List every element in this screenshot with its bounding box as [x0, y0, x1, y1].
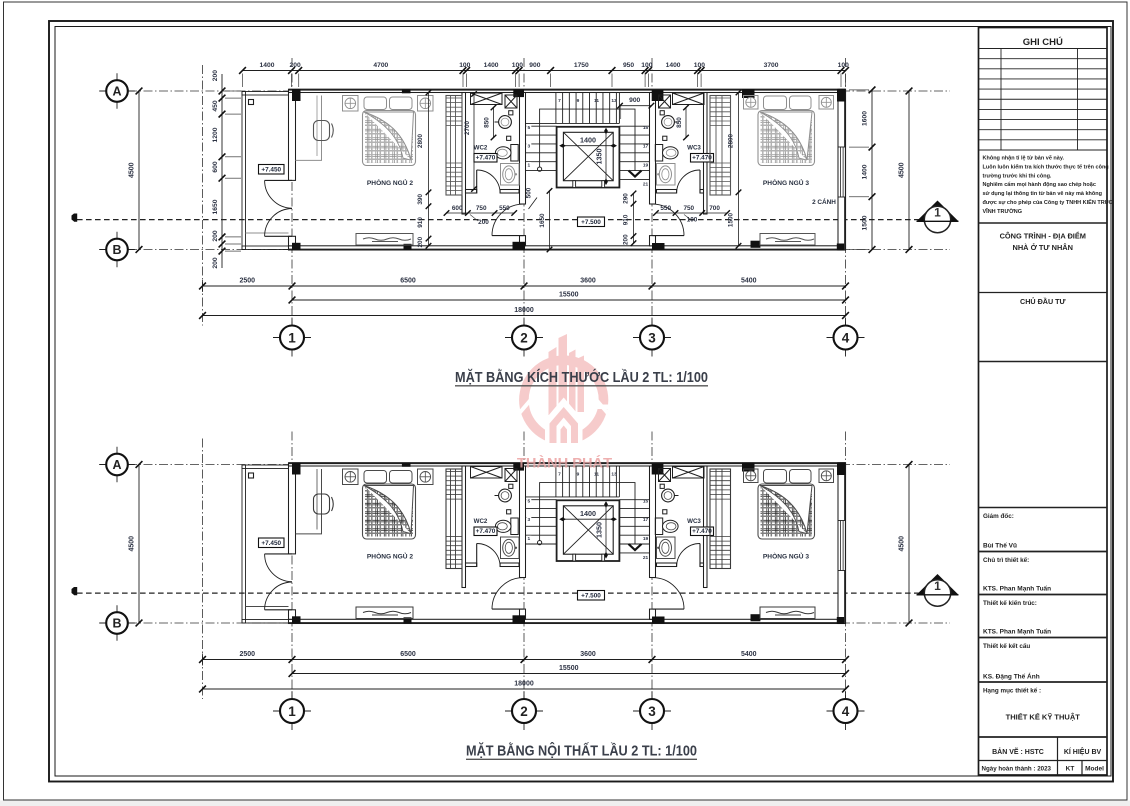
svg-text:+7.500: +7.500 [581, 593, 601, 600]
svg-text:4500: 4500 [129, 536, 136, 552]
svg-text:15500: 15500 [559, 292, 579, 299]
svg-text:1400: 1400 [666, 62, 681, 69]
svg-text:+7.500: +7.500 [581, 219, 601, 226]
svg-text:15: 15 [643, 498, 649, 504]
svg-text:1750: 1750 [574, 62, 589, 69]
svg-text:Thiết kế kết cấu: Thiết kế kết cấu [983, 642, 1030, 650]
svg-text:1400: 1400 [862, 164, 869, 179]
svg-text:PHÒNG NGỦ 2: PHÒNG NGỦ 2 [367, 552, 413, 561]
svg-text:4: 4 [842, 330, 850, 345]
svg-text:15: 15 [643, 125, 649, 131]
svg-text:1350: 1350 [595, 149, 604, 165]
svg-text:100: 100 [459, 62, 470, 69]
svg-text:PHÒNG NGỦ 3: PHÒNG NGỦ 3 [763, 552, 809, 561]
svg-text:15500: 15500 [559, 665, 579, 672]
svg-text:Giám đốc:: Giám đốc: [983, 512, 1014, 520]
svg-text:trường trước khi thi công.: trường trước khi thi công. [983, 173, 1052, 179]
svg-text:THÀNH PHÁT: THÀNH PHÁT [517, 456, 613, 471]
svg-text:910: 910 [417, 217, 424, 228]
svg-text:3700: 3700 [764, 62, 779, 69]
svg-text:11: 11 [594, 472, 599, 478]
svg-text:KTS. Phan Mạnh Tuấn: KTS. Phan Mạnh Tuấn [983, 585, 1051, 593]
svg-text:WC3: WC3 [687, 518, 701, 525]
svg-text:900: 900 [529, 62, 540, 69]
svg-text:1: 1 [288, 704, 296, 719]
svg-text:Chủ trì thiết kế:: Chủ trì thiết kế: [983, 556, 1029, 564]
svg-text:3600: 3600 [580, 278, 596, 285]
svg-text:200: 200 [212, 257, 219, 268]
svg-text:850: 850 [676, 117, 683, 128]
svg-text:Ngày hoàn thành : 2023: Ngày hoàn thành : 2023 [982, 766, 1052, 773]
svg-text:WC2: WC2 [474, 145, 488, 152]
svg-text:B: B [112, 243, 121, 257]
svg-text:3: 3 [648, 330, 656, 345]
svg-text:GHI CHÚ: GHI CHÚ [1023, 36, 1063, 48]
svg-text:được sự cho phép của Công ty T: được sự cho phép của Công ty TNHH KIẾN T… [983, 199, 1113, 206]
svg-text:4500: 4500 [899, 536, 906, 552]
svg-text:19: 19 [643, 163, 649, 169]
svg-text:WC3: WC3 [687, 145, 701, 152]
svg-text:1400: 1400 [260, 62, 275, 69]
svg-text:CÔNG TRÌNH - ĐỊA ĐIỂM: CÔNG TRÌNH - ĐỊA ĐIỂM [1000, 232, 1086, 241]
svg-text:PHÒNG NGỦ 3: PHÒNG NGỦ 3 [763, 178, 809, 187]
svg-text:17: 17 [643, 517, 649, 523]
svg-text:Nghiêm cấm mọi hành động sao c: Nghiêm cấm mọi hành động sao chép hoặc [983, 181, 1096, 188]
svg-text:200: 200 [623, 234, 630, 245]
svg-text:200: 200 [290, 62, 301, 69]
svg-text:7: 7 [558, 472, 561, 478]
svg-text:1: 1 [527, 163, 530, 169]
svg-text:550: 550 [499, 205, 510, 212]
svg-text:5: 5 [527, 125, 530, 131]
svg-text:13: 13 [611, 472, 617, 478]
svg-text:PHÒNG NGỦ 2: PHÒNG NGỦ 2 [367, 178, 413, 187]
svg-text:2 CÁNH: 2 CÁNH [812, 197, 836, 206]
svg-text:5400: 5400 [741, 651, 757, 658]
svg-text:1200: 1200 [212, 127, 219, 142]
svg-text:+7.470: +7.470 [476, 528, 496, 535]
svg-text:VĨNH TRƯỜNG: VĨNH TRƯỜNG [983, 207, 1023, 215]
svg-text:1600: 1600 [862, 111, 869, 126]
svg-text:600: 600 [452, 205, 463, 212]
svg-text:1650: 1650 [212, 199, 219, 214]
svg-text:21: 21 [643, 555, 649, 561]
svg-text:KS. Đặng Thế Ánh: KS. Đặng Thế Ánh [983, 672, 1040, 681]
svg-text:2: 2 [520, 704, 528, 719]
svg-text:NHÀ Ở TƯ NHÂN: NHÀ Ở TƯ NHÂN [1013, 243, 1073, 252]
svg-text:100: 100 [838, 62, 849, 69]
svg-text:750: 750 [683, 205, 694, 212]
svg-text:Thiết kế kiến trúc:: Thiết kế kiến trúc: [983, 599, 1037, 607]
svg-text:3600: 3600 [580, 651, 596, 658]
svg-text:750: 750 [476, 205, 487, 212]
svg-text:A: A [112, 458, 121, 472]
svg-text:17: 17 [643, 144, 649, 150]
svg-text:4500: 4500 [129, 162, 136, 178]
svg-text:700: 700 [709, 205, 720, 212]
svg-text:1400: 1400 [484, 62, 499, 69]
svg-text:1400: 1400 [580, 135, 596, 144]
svg-text:4700: 4700 [373, 62, 388, 69]
svg-text:2700: 2700 [464, 120, 471, 135]
svg-text:+7.450: +7.450 [261, 540, 281, 547]
svg-text:THIẾT KẾ KỸ THUẬT: THIẾT KẾ KỸ THUẬT [1006, 712, 1081, 722]
svg-text:18000: 18000 [514, 681, 534, 688]
svg-text:100: 100 [512, 62, 523, 69]
svg-text:390: 390 [417, 194, 424, 205]
svg-text:1: 1 [288, 330, 296, 345]
svg-text:200: 200 [212, 230, 219, 241]
svg-text:+7.470: +7.470 [692, 528, 712, 535]
svg-text:13: 13 [611, 98, 617, 104]
svg-text:1: 1 [934, 206, 941, 220]
svg-text:100: 100 [641, 62, 652, 69]
svg-text:2: 2 [520, 330, 528, 345]
svg-text:CHỦ ĐẦU TƯ: CHỦ ĐẦU TƯ [1020, 296, 1066, 306]
svg-text:2800: 2800 [417, 133, 424, 148]
svg-text:910: 910 [623, 214, 630, 225]
svg-text:100: 100 [694, 62, 705, 69]
svg-text:18000: 18000 [514, 307, 534, 314]
svg-text:9: 9 [577, 98, 580, 104]
svg-text:MẶT BẰNG NỘI THẤT LẦU 2 TL: 1: MẶT BẰNG NỘI THẤT LẦU 2 TL: 1/100 [466, 741, 697, 759]
svg-text:Model: Model [1085, 766, 1104, 773]
svg-text:4: 4 [842, 704, 850, 719]
svg-text:6500: 6500 [400, 651, 416, 658]
svg-text:Không nhận tỉ lệ từ bản vẽ này: Không nhận tỉ lệ từ bản vẽ này. [983, 156, 1065, 162]
svg-text:450: 450 [212, 100, 219, 111]
svg-text:500: 500 [526, 187, 533, 198]
svg-text:Bùi Thế Vũ: Bùi Thế Vũ [983, 542, 1017, 550]
svg-text:Hạng mục thiết kế :: Hạng mục thiết kế : [983, 687, 1041, 695]
svg-text:1350: 1350 [595, 522, 604, 538]
svg-text:1500: 1500 [862, 215, 869, 230]
svg-text:+7.470: +7.470 [692, 155, 712, 162]
svg-text:5: 5 [527, 498, 530, 504]
svg-text:3: 3 [648, 704, 656, 719]
svg-text:KÍ HIỆU BV: KÍ HIỆU BV [1064, 747, 1102, 756]
svg-text:7: 7 [558, 98, 561, 104]
svg-text:1: 1 [527, 536, 530, 542]
svg-text:1: 1 [934, 579, 941, 593]
svg-text:600: 600 [212, 161, 219, 172]
svg-text:KT: KT [1066, 766, 1075, 773]
svg-text:5400: 5400 [741, 278, 757, 285]
svg-text:B: B [112, 617, 121, 631]
svg-text:2500: 2500 [239, 651, 255, 658]
svg-text:11: 11 [594, 98, 599, 104]
svg-text:2500: 2500 [239, 278, 255, 285]
svg-text:WC2: WC2 [474, 518, 488, 525]
svg-text:19: 19 [643, 536, 649, 542]
svg-text:900: 900 [629, 97, 640, 104]
svg-text:1650: 1650 [539, 213, 546, 228]
svg-text:1500: 1500 [728, 212, 735, 227]
svg-text:2800: 2800 [728, 133, 735, 148]
svg-text:Luôn luôn kiểm tra kích thước: Luôn luôn kiểm tra kích thước thực tế tr… [983, 163, 1109, 170]
svg-text:200: 200 [212, 70, 219, 81]
svg-text:200: 200 [478, 219, 489, 226]
svg-text:+7.470: +7.470 [476, 155, 496, 162]
svg-text:+7.450: +7.450 [261, 167, 281, 174]
svg-text:3: 3 [527, 144, 530, 150]
svg-text:1400: 1400 [580, 509, 596, 518]
svg-text:KTS. Phan Mạnh Tuấn: KTS. Phan Mạnh Tuấn [983, 628, 1051, 636]
svg-text:550: 550 [660, 205, 671, 212]
svg-text:290: 290 [623, 193, 630, 204]
svg-text:850: 850 [484, 117, 491, 128]
svg-text:200: 200 [417, 236, 424, 247]
svg-text:A: A [112, 85, 121, 99]
svg-text:BẢN VẼ : HSTC: BẢN VẼ : HSTC [992, 747, 1044, 756]
svg-text:9: 9 [577, 472, 580, 478]
svg-text:950: 950 [623, 62, 634, 69]
svg-text:3: 3 [527, 517, 530, 523]
svg-text:sử dụng lại thông tin từ bản v: sử dụng lại thông tin từ bản vẽ này mà k… [983, 191, 1103, 197]
svg-text:4500: 4500 [899, 162, 906, 178]
svg-text:6500: 6500 [400, 278, 416, 285]
svg-text:21: 21 [643, 181, 649, 187]
svg-text:MẶT BẰNG KÍCH THƯỚC LẦU 2 TL:: MẶT BẰNG KÍCH THƯỚC LẦU 2 TL: 1/100 [455, 368, 708, 386]
